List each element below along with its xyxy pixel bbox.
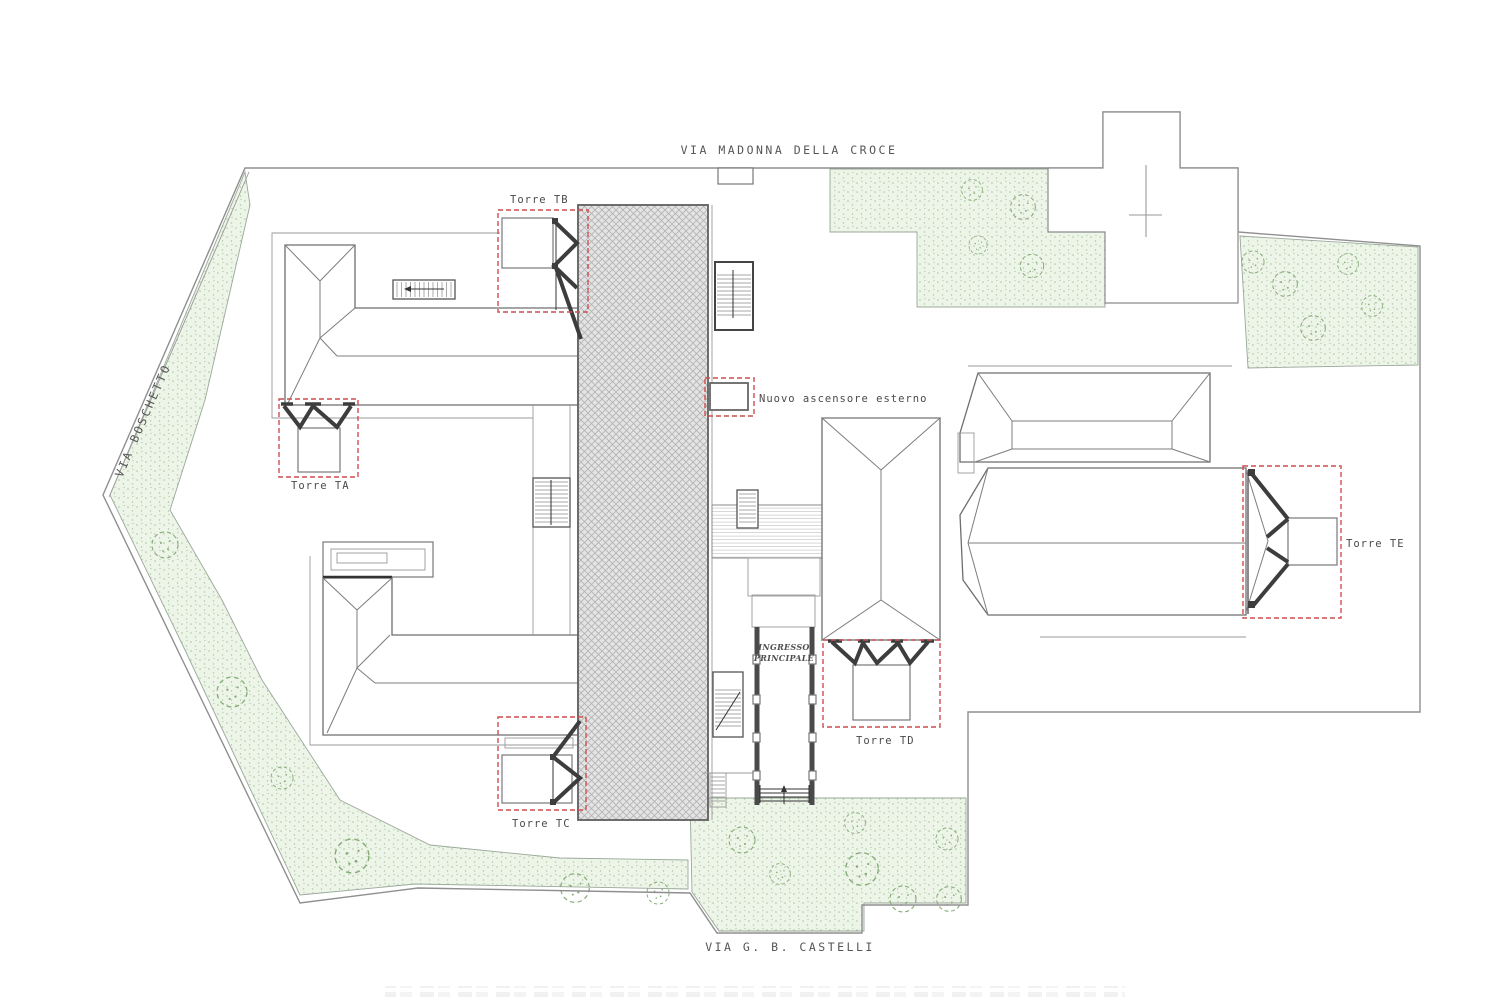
tower-ta-truss xyxy=(284,406,351,427)
tower-ta: Torre TA xyxy=(279,399,358,492)
tower-tb-core xyxy=(502,218,553,268)
upper-left-frame xyxy=(272,233,533,418)
tower-ta-label: Torre TA xyxy=(291,480,350,492)
tower-tc: Torre TC xyxy=(498,717,586,830)
lower-left-wing xyxy=(310,542,578,745)
west-staircase xyxy=(713,672,743,737)
tower-tc-label: Torre TC xyxy=(512,818,571,830)
entrance-room-upper xyxy=(748,558,820,596)
street-label-bottom: VIA G. B. CASTELLI xyxy=(705,940,875,954)
elevator-annotation: Nuovo ascensore esterno xyxy=(705,378,927,416)
wall-door-marks xyxy=(753,655,816,780)
tower-tb-label: Torre TB xyxy=(510,194,569,206)
street-label-top: VIA MADONNA DELLA CROCE xyxy=(681,143,898,157)
green-bottom-middle xyxy=(690,798,966,931)
lower-left-roof xyxy=(323,578,578,735)
truss-plate xyxy=(550,799,556,805)
upper-right-rooflines xyxy=(975,373,1210,462)
truss-plate xyxy=(1248,469,1255,476)
big-right-roof xyxy=(960,468,1246,615)
td-roof-tri-bottom xyxy=(822,600,940,640)
upper-right-building xyxy=(958,373,1210,473)
elevator-core xyxy=(710,383,748,410)
big-right-rooflines xyxy=(968,468,1268,615)
elevator-label: Nuovo ascensore esterno xyxy=(759,393,927,405)
tower-td-core xyxy=(853,665,910,720)
tower-te-label: Torre TE xyxy=(1346,538,1405,550)
td-roof-tri-top xyxy=(822,418,940,470)
east-staircase xyxy=(715,262,753,330)
stair-rungs xyxy=(711,777,725,801)
central-building-roof xyxy=(578,205,708,820)
lower-left-rooflines xyxy=(323,578,578,733)
central-connector xyxy=(712,490,822,558)
tower-tb-truss xyxy=(554,221,581,339)
entrance-label-line1: INGRESSO xyxy=(757,642,809,652)
flat-roof-outer xyxy=(323,542,433,577)
truss-plate xyxy=(552,218,558,224)
entrance-corridor: INGRESSO PRINCIPALE xyxy=(710,558,820,807)
connector-roof xyxy=(712,505,822,558)
tower-ta-core xyxy=(298,428,340,472)
left-corridor xyxy=(533,405,570,635)
tower-td-truss xyxy=(832,642,928,663)
green-top-right xyxy=(1240,236,1418,368)
truss-plate xyxy=(550,754,556,760)
scale-strip xyxy=(385,986,1125,997)
tower-tb: Torre TB xyxy=(498,194,588,339)
tower-td: Torre TD xyxy=(823,640,940,747)
entrance-room xyxy=(752,595,815,627)
tower-td-label: Torre TD xyxy=(856,735,915,747)
truss-plate xyxy=(1248,601,1255,608)
td-building xyxy=(822,418,940,640)
entrance-label-line2: PRINCIPALE xyxy=(753,653,815,663)
tower-te-truss xyxy=(1252,474,1288,607)
stair-box xyxy=(715,262,753,330)
upper-left-roof xyxy=(285,245,578,405)
site-plan-canvas: INGRESSO PRINCIPALE Torre TB Torre TA To… xyxy=(0,0,1500,1000)
lower-left-frame xyxy=(310,556,578,745)
tower-te-core xyxy=(1288,518,1337,565)
big-right-building xyxy=(960,468,1268,615)
truss-plate xyxy=(552,263,558,269)
upper-left-rooflines xyxy=(285,245,578,403)
top-boundary-structure xyxy=(718,168,753,184)
